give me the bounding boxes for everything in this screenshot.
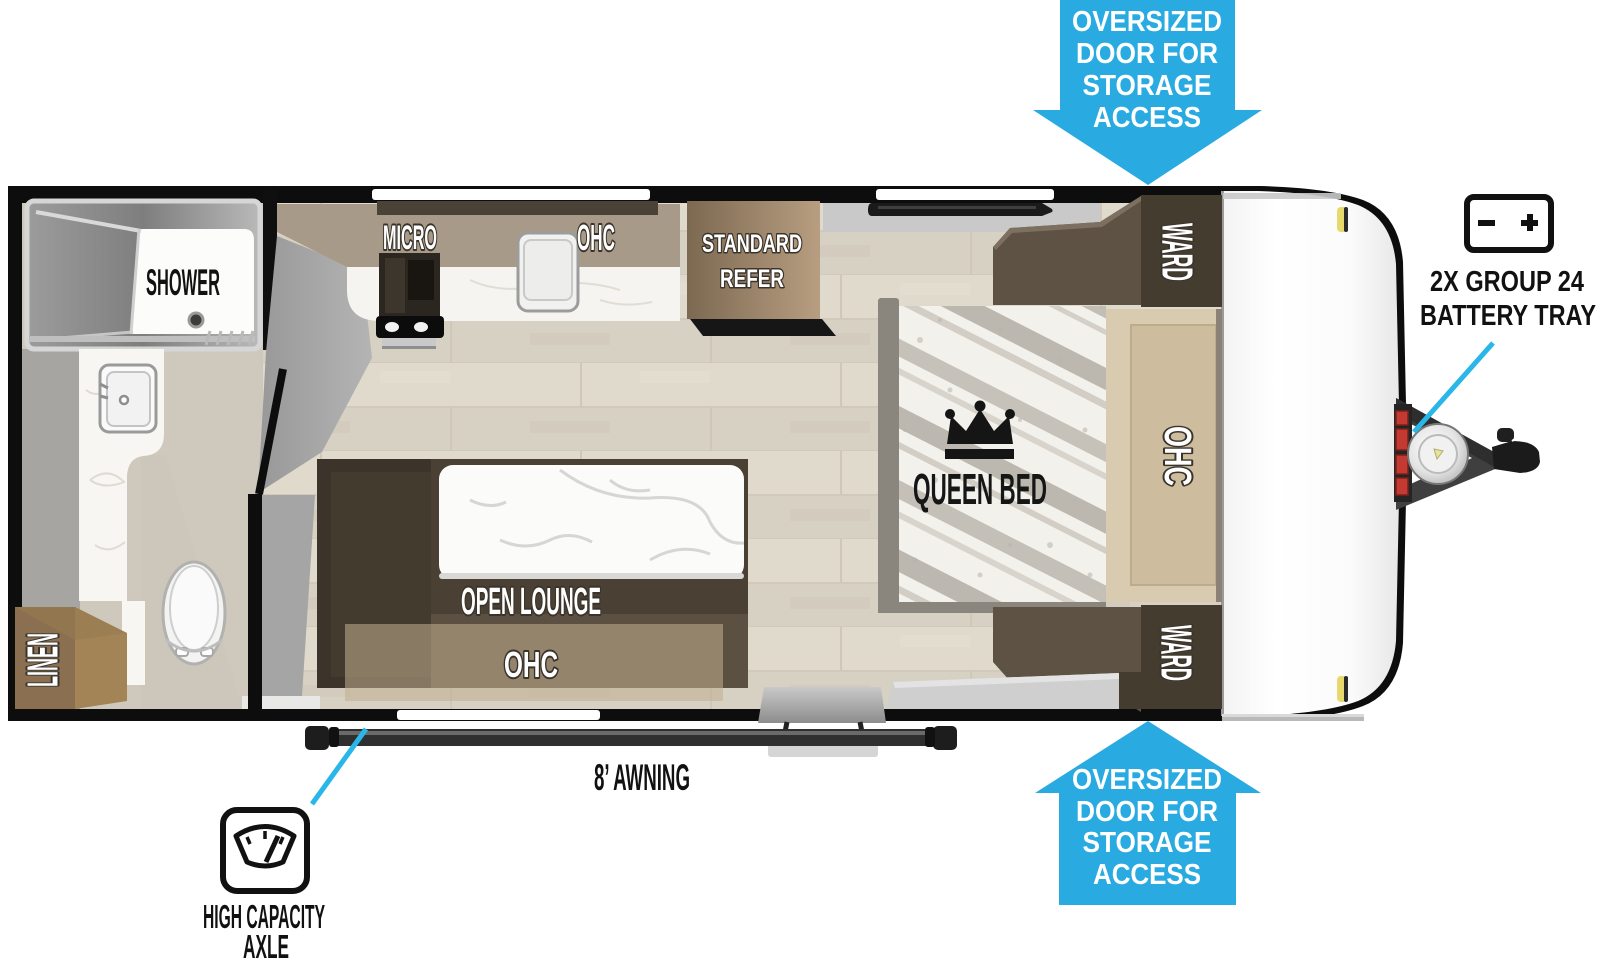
svg-text:BATTERY TRAY: BATTERY TRAY xyxy=(1420,300,1596,332)
svg-text:8’ AWNING: 8’ AWNING xyxy=(594,757,690,798)
svg-text:WARD: WARD xyxy=(1152,223,1201,281)
svg-text:WARD: WARD xyxy=(1151,625,1200,681)
svg-text:DOOR FOR: DOOR FOR xyxy=(1076,796,1218,828)
svg-text:QUEEN BED: QUEEN BED xyxy=(913,465,1047,514)
svg-text:2X GROUP 24: 2X GROUP 24 xyxy=(1430,266,1584,298)
svg-text:STANDARD: STANDARD xyxy=(702,230,802,258)
svg-text:OHC: OHC xyxy=(1156,426,1198,486)
svg-text:AXLE: AXLE xyxy=(243,928,289,960)
svg-text:DOOR FOR: DOOR FOR xyxy=(1076,38,1218,70)
svg-text:ACCESS: ACCESS xyxy=(1093,102,1201,134)
svg-text:ACCESS: ACCESS xyxy=(1093,859,1201,891)
svg-text:MICRO: MICRO xyxy=(383,219,437,257)
svg-text:STORAGE: STORAGE xyxy=(1083,70,1212,102)
svg-text:OHC: OHC xyxy=(504,644,558,685)
svg-text:SHOWER: SHOWER xyxy=(146,262,220,303)
svg-text:OVERSIZED: OVERSIZED xyxy=(1072,6,1222,38)
svg-text:OHC: OHC xyxy=(577,217,615,258)
svg-text:OVERSIZED: OVERSIZED xyxy=(1072,764,1222,796)
svg-text:REFER: REFER xyxy=(720,265,784,293)
svg-text:OPEN LOUNGE: OPEN LOUNGE xyxy=(461,581,601,623)
svg-text:LINEN: LINEN xyxy=(19,633,68,687)
svg-text:STORAGE: STORAGE xyxy=(1083,827,1212,859)
